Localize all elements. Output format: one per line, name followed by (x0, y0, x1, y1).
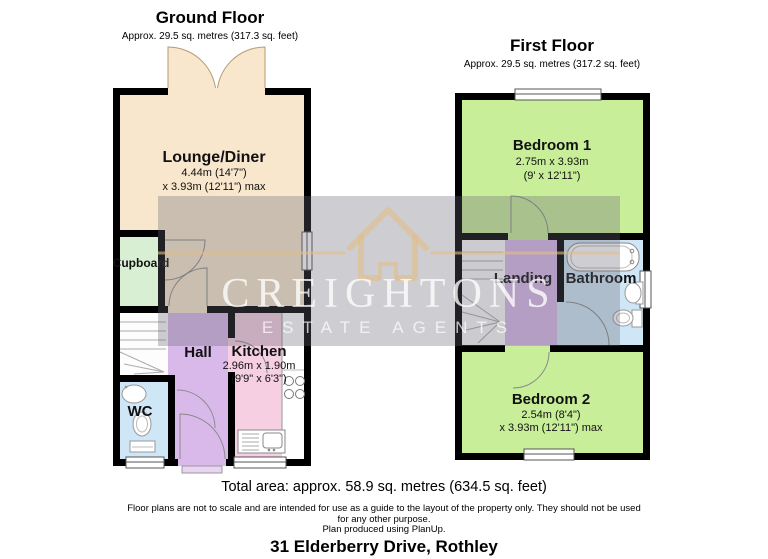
floorplan-page: Ground Floor Approx. 29.5 sq. metres (31… (0, 0, 768, 559)
kitchen-sink-icon (238, 430, 285, 453)
bedroom2-window-icon (524, 449, 574, 460)
label-bedroom1-dim2: (9' x 12'11") (524, 170, 581, 182)
label-lounge: Lounge/Diner (162, 149, 265, 166)
disclaimer-line1: Floor plans are not to scale and are int… (0, 503, 768, 514)
agency-watermark: CREIGHTONS ESTATE AGENTS (158, 196, 620, 346)
label-bedroom1-dim1: 2.75m x 3.93m (516, 156, 589, 168)
wc-window-icon (126, 457, 164, 468)
kitchen-window-icon (234, 457, 286, 468)
label-lounge-dim1: 4.44m (14'7") (181, 167, 246, 179)
label-wc: WC (128, 403, 153, 420)
label-hall: Hall (184, 344, 212, 361)
watermark-brand: CREIGHTONS (158, 270, 620, 318)
watermark-tagline: ESTATE AGENTS (158, 318, 620, 338)
label-bedroom2-dim2: x 3.93m (12'11") max (499, 422, 603, 434)
room-cupboard (120, 237, 158, 306)
wc-sink-icon (122, 385, 146, 403)
label-bedroom2-dim1: 2.54m (8'4") (521, 409, 580, 421)
label-kitchen-dim1: 2.96m x 1.90m (223, 360, 296, 372)
planup-credit: Plan produced using PlanUp. (0, 524, 768, 535)
label-bedroom2: Bedroom 2 (512, 391, 590, 408)
label-lounge-dim2: x 3.93m (12'11") max (162, 181, 266, 193)
label-bedroom1: Bedroom 1 (513, 137, 591, 154)
french-doors-icon (168, 47, 265, 95)
property-address: 31 Elderberry Drive, Rothley (0, 537, 768, 557)
total-area-text: Total area: approx. 58.9 sq. metres (634… (0, 479, 768, 495)
bedroom1-window-icon (515, 89, 601, 100)
label-kitchen-dim2: (9'9" x 6'3") (231, 373, 286, 385)
